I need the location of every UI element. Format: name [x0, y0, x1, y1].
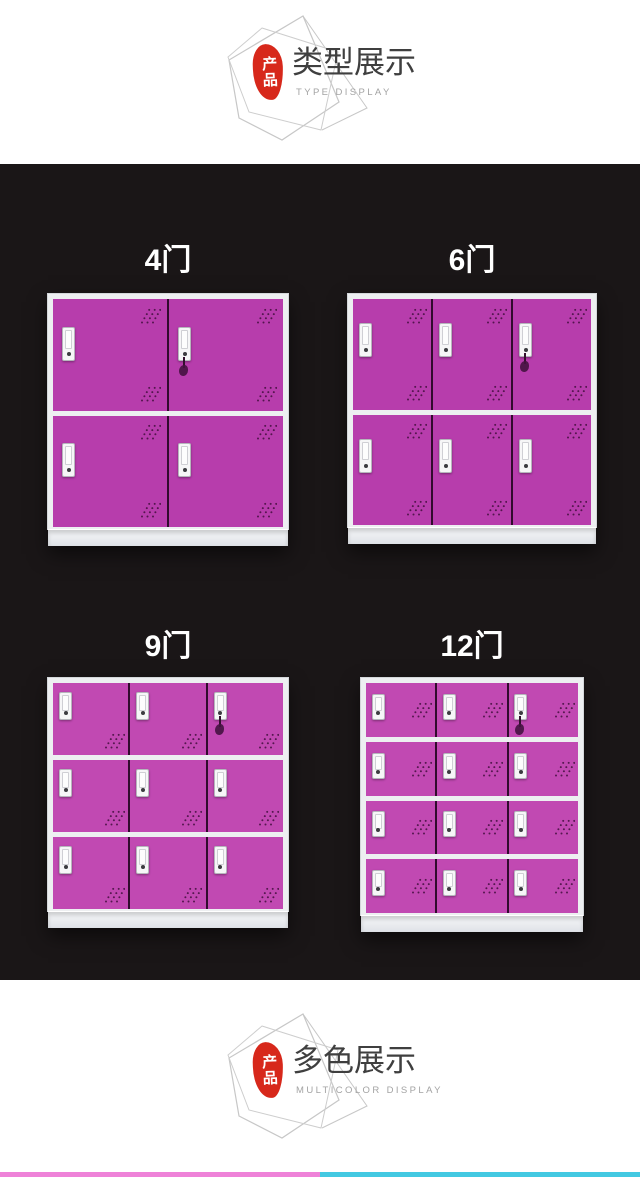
- vent-holes-icon: [481, 759, 503, 779]
- vent-holes-icon: [255, 500, 277, 520]
- door-handle-lock: [443, 753, 456, 779]
- locker-door: [366, 859, 435, 913]
- badge-text: 多色展示 MULTICOLOR DISPLAY: [292, 1045, 425, 1096]
- door-handle-lock: [59, 769, 72, 797]
- locker-door: [130, 683, 205, 755]
- hanging-key-icon: [524, 353, 526, 364]
- door-handle-lock: [514, 811, 527, 837]
- locker-label: 6门: [449, 242, 496, 282]
- door-handle-lock: [59, 846, 72, 874]
- vent-holes-icon: [405, 306, 427, 326]
- locker-door: [53, 299, 167, 411]
- vent-holes-icon: [553, 817, 575, 837]
- section-subtitle: MULTICOLOR DISPLAY: [292, 1085, 425, 1096]
- locker-row: [53, 760, 283, 832]
- locker-row: [366, 742, 578, 796]
- vent-holes-icon: [485, 498, 507, 518]
- vent-holes-icon: [481, 876, 503, 896]
- locker-cell-4-door: 4门: [8, 242, 328, 628]
- door-handle-lock: [372, 870, 385, 896]
- door-handle-lock: [59, 692, 72, 720]
- door-handle-lock: [214, 846, 227, 874]
- locker-door: [208, 683, 283, 755]
- locker-cell-9-door: 9门: [8, 628, 328, 980]
- locker-12-door-cabinet: [361, 678, 583, 932]
- locker-door: [130, 760, 205, 832]
- door-handle-lock: [214, 692, 227, 720]
- vent-holes-icon: [405, 421, 427, 441]
- door-handle-lock: [62, 443, 75, 477]
- locker-door: [509, 801, 578, 855]
- door-handle-lock: [359, 439, 372, 473]
- pink-strip: [0, 1172, 320, 1177]
- door-handle-lock: [178, 327, 191, 361]
- vent-holes-icon: [255, 422, 277, 442]
- locker-base-plinth: [48, 529, 288, 546]
- door-handle-lock: [439, 439, 452, 473]
- door-handle-lock: [439, 323, 452, 357]
- vent-holes-icon: [103, 808, 125, 828]
- vent-holes-icon: [405, 498, 427, 518]
- locker-row: [366, 801, 578, 855]
- door-handle-lock: [136, 769, 149, 797]
- vent-holes-icon: [553, 700, 575, 720]
- door-handle-lock: [359, 323, 372, 357]
- section-title: 类型展示: [292, 47, 425, 80]
- locker-door: [433, 299, 511, 410]
- locker-row: [353, 415, 591, 526]
- section-subtitle: TYPE DISPLAY: [292, 87, 425, 98]
- product-page: 产品 类型展示 TYPE DISPLAY 4门6门9门12门 产品 多色展示 M…: [0, 0, 640, 1177]
- vent-holes-icon: [485, 421, 507, 441]
- vent-holes-icon: [180, 885, 202, 905]
- locker-doors: [48, 294, 288, 529]
- door-handle-lock: [443, 870, 456, 896]
- door-handle-lock: [136, 846, 149, 874]
- cyan-strip: [320, 1172, 640, 1177]
- vent-holes-icon: [139, 384, 161, 404]
- vent-holes-icon: [139, 500, 161, 520]
- locker-door: [53, 837, 128, 909]
- door-handle-lock: [519, 323, 532, 357]
- hanging-key-icon: [219, 716, 221, 727]
- locker-door: [366, 801, 435, 855]
- locker-door: [353, 415, 431, 526]
- vent-holes-icon: [405, 383, 427, 403]
- vent-holes-icon: [255, 306, 277, 326]
- locker-door: [437, 742, 506, 796]
- door-handle-lock: [372, 753, 385, 779]
- locker-door: [208, 760, 283, 832]
- door-handle-lock: [443, 694, 456, 720]
- locker-row: [366, 683, 578, 737]
- locker-6-door-cabinet: [348, 294, 596, 544]
- door-handle-lock: [514, 870, 527, 896]
- locker-row: [53, 299, 283, 411]
- locker-door: [509, 683, 578, 737]
- locker-door: [513, 415, 591, 526]
- locker-doors: [361, 678, 583, 915]
- section-title: 多色展示: [292, 1045, 425, 1078]
- vent-holes-icon: [481, 700, 503, 720]
- locker-label: 12门: [440, 628, 503, 668]
- vent-holes-icon: [565, 306, 587, 326]
- vent-holes-icon: [565, 498, 587, 518]
- locker-doors: [48, 678, 288, 911]
- door-handle-lock: [178, 443, 191, 477]
- vent-holes-icon: [410, 759, 432, 779]
- vent-holes-icon: [553, 759, 575, 779]
- seal-label: 产品: [260, 56, 276, 89]
- vent-holes-icon: [410, 876, 432, 896]
- locker-door: [53, 416, 167, 528]
- vent-holes-icon: [565, 421, 587, 441]
- locker-door: [53, 683, 128, 755]
- locker-9-door-cabinet: [48, 678, 288, 928]
- door-handle-lock: [372, 811, 385, 837]
- locker-door: [437, 683, 506, 737]
- door-handle-lock: [519, 439, 532, 473]
- vent-holes-icon: [180, 731, 202, 751]
- locker-doors: [348, 294, 596, 527]
- locker-door: [353, 299, 431, 410]
- locker-4-door-cabinet: [48, 294, 288, 546]
- vent-holes-icon: [410, 817, 432, 837]
- vent-holes-icon: [139, 306, 161, 326]
- door-handle-lock: [62, 327, 75, 361]
- locker-base-plinth: [348, 527, 596, 544]
- door-handle-lock: [443, 811, 456, 837]
- locker-door: [513, 299, 591, 410]
- vent-holes-icon: [553, 876, 575, 896]
- locker-row: [353, 299, 591, 410]
- door-handle-lock: [514, 694, 527, 720]
- vent-holes-icon: [485, 383, 507, 403]
- vent-holes-icon: [485, 306, 507, 326]
- vent-holes-icon: [257, 731, 279, 751]
- door-handle-lock: [136, 692, 149, 720]
- seal-label: 产品: [260, 1054, 276, 1087]
- locker-row: [53, 416, 283, 528]
- locker-row: [366, 859, 578, 913]
- locker-label: 4门: [145, 242, 192, 282]
- door-handle-lock: [372, 694, 385, 720]
- vent-holes-icon: [255, 384, 277, 404]
- locker-door: [366, 683, 435, 737]
- locker-cell-6-door: 6门: [312, 242, 632, 628]
- hanging-key-icon: [183, 357, 185, 368]
- locker-row: [53, 837, 283, 909]
- vent-holes-icon: [180, 808, 202, 828]
- locker-label: 9门: [145, 628, 192, 668]
- locker-row: [53, 683, 283, 755]
- locker-door: [130, 837, 205, 909]
- vent-holes-icon: [103, 885, 125, 905]
- locker-door: [169, 299, 283, 411]
- locker-door: [509, 859, 578, 913]
- bottom-color-strip: [0, 1172, 640, 1177]
- badge-text: 类型展示 TYPE DISPLAY: [292, 47, 425, 98]
- locker-door: [208, 837, 283, 909]
- hanging-key-icon: [519, 716, 521, 727]
- locker-door: [437, 859, 506, 913]
- vent-holes-icon: [565, 383, 587, 403]
- vent-holes-icon: [139, 422, 161, 442]
- locker-door: [509, 742, 578, 796]
- door-handle-lock: [214, 769, 227, 797]
- vent-holes-icon: [257, 885, 279, 905]
- vent-holes-icon: [481, 817, 503, 837]
- locker-door: [53, 760, 128, 832]
- locker-base-plinth: [361, 915, 583, 932]
- locker-door: [366, 742, 435, 796]
- multicolor-display-badge: 产品 多色展示 MULTICOLOR DISPLAY: [215, 998, 425, 1158]
- locker-door: [169, 416, 283, 528]
- vent-holes-icon: [410, 700, 432, 720]
- door-handle-lock: [514, 753, 527, 779]
- type-display-badge: 产品 类型展示 TYPE DISPLAY: [215, 0, 425, 160]
- locker-base-plinth: [48, 911, 288, 928]
- vent-holes-icon: [257, 808, 279, 828]
- vent-holes-icon: [103, 731, 125, 751]
- locker-type-showcase: 4门6门9门12门: [0, 164, 640, 980]
- locker-door: [433, 415, 511, 526]
- locker-door: [437, 801, 506, 855]
- locker-cell-12-door: 12门: [312, 628, 632, 980]
